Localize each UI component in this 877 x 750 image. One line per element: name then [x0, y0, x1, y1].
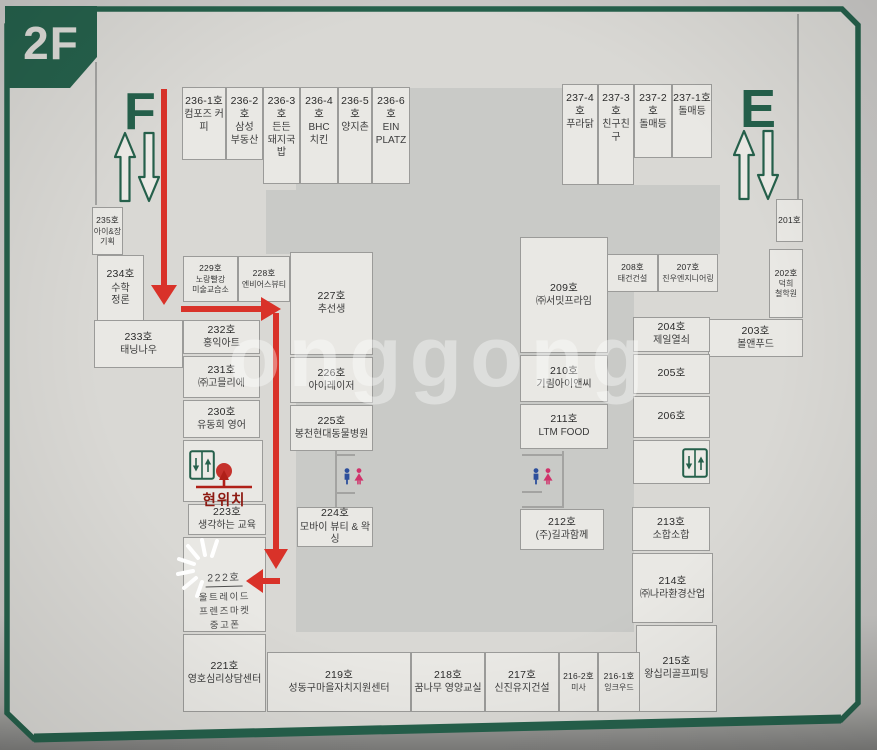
unit-237-1: 237-1호 돌매등 [672, 84, 712, 158]
current-location-dot [216, 463, 232, 479]
unit-number: 222호 [205, 570, 243, 588]
unit-237-2: 237-2호 돌매등 [634, 84, 672, 158]
unit-204: 204호 제일열쇠 [633, 317, 710, 352]
elevator-icon [189, 450, 215, 480]
unit-216-1: 216-1호 잉크우드 [598, 652, 640, 712]
unit-name: 영호심리상담센터 [188, 674, 262, 687]
unit-number: 237-3호 [599, 92, 633, 118]
unit-name: 든든 돼지국밥 [264, 122, 299, 160]
wall-line-right [797, 14, 799, 204]
unit-name: 성동구마을자치지원센터 [288, 683, 389, 696]
unit-218: 218호 꿈나무 영양교실 [411, 652, 485, 712]
unit-name: 돌매등 [678, 106, 706, 119]
unit-222-handwritten: 222호 울트레이드 프렌즈마켓 중고폰 [183, 567, 266, 633]
unit-229: 229호 노랑빨강 미술교습소 [183, 256, 238, 302]
toilet-wall [335, 492, 355, 494]
unit-name: 봉천현대동물병원 [295, 429, 369, 442]
unit-236-5: 236-5호 양지촌 [338, 87, 372, 184]
unit-number: 229호 [199, 263, 222, 274]
unit-226: 226호 아이레이저 [290, 357, 373, 403]
toilet-wall [562, 451, 564, 508]
unit-number: 205호 [658, 367, 686, 380]
unit-name: (주)길과함께 [536, 530, 589, 543]
courtyard-right-gap [634, 185, 720, 254]
unit-number: 212호 [548, 516, 576, 529]
unit-name: 아이레이저 [309, 381, 355, 394]
unit-number: 236-2호 [227, 95, 262, 121]
unit-number: 209호 [550, 282, 578, 295]
unit-224: 224호 모바이 뷰티 & 왁싱 [297, 507, 373, 547]
unit-227: 227호 추선생 [290, 252, 373, 355]
unit-number: 218호 [434, 669, 462, 682]
unit-name: 엔비어스뷰티 [242, 280, 286, 290]
unit-202: 202호 덕희 철학원 [769, 249, 803, 318]
unit-number: 237-2호 [635, 92, 671, 118]
unit-name: 신진유지건설 [494, 683, 549, 696]
unit-225: 225호 봉천현대동물병원 [290, 405, 373, 451]
unit-name: 모바이 뷰티 & 왁싱 [298, 522, 372, 547]
unit-233: 233호 태닝나우 [94, 320, 183, 368]
unit-235: 235호 아이&장 기획 [92, 207, 123, 255]
unit-211: 211호 LTM FOOD [520, 404, 608, 449]
unit-name: 태닝나우 [120, 345, 157, 358]
unit-213: 213호 소합소합 [632, 507, 710, 551]
unit-236-2: 236-2호 삼성 부동산 [226, 87, 263, 160]
unit-203: 203호 볼앤푸드 [708, 319, 803, 357]
unit-name: LTM FOOD [539, 427, 590, 440]
courtyard-left-gap [266, 190, 296, 254]
unit-name: 추선생 [318, 304, 346, 317]
unit-name: 진우엔지니어링 [662, 274, 714, 284]
unit-name: 제일열쇠 [653, 335, 690, 348]
unit-number: 204호 [658, 321, 686, 334]
unit-number: 231호 [208, 364, 236, 377]
unit-number: 201호 [778, 215, 801, 226]
floor-map-photo: { "floor_label": "2F", "stairs": { "f_la… [0, 0, 877, 750]
unit-name: EIN PLATZ [376, 122, 406, 147]
unit-number: 236-1호 [185, 95, 223, 108]
unit-number: 237-1호 [673, 92, 711, 105]
toilet-wall [522, 506, 564, 508]
unit-237-4: 237-4호 푸라닭 [562, 84, 598, 185]
unit-name: 돌매등 [639, 119, 667, 132]
unit-name: 생각하는 교육 [198, 520, 256, 533]
unit-207: 207호 진우엔지니어링 [658, 254, 718, 292]
stairs-f-arrows-icon [114, 131, 160, 203]
unit-name: ㈜서밋프라임 [536, 296, 592, 309]
unit-name: 양지촌 [341, 122, 369, 135]
unit-214: 214호 ㈜나라환경산업 [632, 553, 713, 623]
toilet-icon [341, 468, 367, 485]
wall-line-left [95, 62, 97, 205]
unit-name: 유동희 영어 [197, 420, 246, 433]
floor-badge-label: 2F [14, 16, 88, 70]
unit-name: 기림아이앤씨 [536, 379, 591, 392]
unit-number: 232호 [208, 324, 236, 337]
unit-215: 215호 왕십리골프피팅 [636, 625, 717, 712]
unit-217: 217호 신진유지건설 [485, 652, 559, 712]
stairs-e-arrows-icon [733, 129, 779, 201]
toilet-wall [522, 491, 542, 493]
unit-number: 236-3호 [264, 95, 299, 121]
unit-212: 212호 (주)길과함께 [520, 509, 604, 550]
unit-name: 푸라닭 [566, 119, 594, 132]
unit-205: 205호 [633, 354, 710, 394]
unit-236-1: 236-1호 컴포즈 커피 [182, 87, 226, 160]
unit-name: 볼앤푸드 [737, 339, 774, 352]
unit-name: 친구친구 [599, 119, 633, 144]
unit-name: 노랑빨강 미술교습소 [192, 275, 229, 295]
toilet-wall [522, 454, 564, 456]
unit-number: 217호 [508, 669, 536, 682]
unit-number: 236-5호 [339, 95, 371, 121]
unit-236-6: 236-6호 EIN PLATZ [372, 87, 410, 184]
unit-number: 235호 [96, 215, 119, 226]
unit-number: 210호 [550, 365, 578, 378]
courtyard-top-gap [410, 88, 562, 158]
unit-number: 208호 [621, 262, 644, 273]
unit-237-3: 237-3호 친구친구 [598, 84, 634, 185]
unit-234: 234호 수학 정론 [97, 255, 144, 321]
unit-name: 컴포즈 커피 [183, 109, 225, 134]
unit-name: 울트레이드 프렌즈마켓 중고폰 [184, 590, 266, 633]
unit-number: 237-4호 [563, 92, 597, 118]
unit-number: 213호 [657, 516, 685, 529]
unit-236-4: 236-4호 BHC 치킨 [300, 87, 338, 184]
unit-number: 226호 [318, 367, 346, 380]
unit-231: 231호 ㈜고믈리에 [183, 356, 260, 398]
unit-228: 228호 엔비어스뷰티 [238, 256, 290, 302]
unit-name: BHC 치킨 [308, 122, 329, 147]
unit-number: 215호 [663, 655, 691, 668]
toilet-icon [530, 468, 556, 485]
unit-209: 209호 ㈜서밋프라임 [520, 237, 608, 353]
unit-name: 꿈나무 영양교실 [414, 683, 481, 696]
unit-number: 225호 [318, 415, 346, 428]
toilet-wall [335, 454, 355, 456]
unit-number: 230호 [208, 406, 236, 419]
unit-216-2: 216-2호 미사 [559, 652, 598, 712]
unit-number: 216-2호 [563, 671, 594, 682]
unit-number: 234호 [107, 268, 135, 281]
unit-221: 221호 영호심리상담센터 [183, 634, 266, 712]
unit-name: 잉크우드 [604, 683, 633, 693]
unit-number: 219호 [325, 669, 353, 682]
unit-number: 228호 [253, 268, 276, 279]
unit-number: 236-6호 [373, 95, 409, 121]
unit-name: 왕십리골프피팅 [644, 669, 708, 682]
unit-number: 202호 [775, 268, 798, 279]
unit-219: 219호 성동구마을자치지원센터 [267, 652, 411, 712]
unit-number: 207호 [677, 262, 700, 273]
unit-208: 208호 태건건설 [607, 254, 658, 292]
unit-name: ㈜고믈리에 [198, 378, 245, 391]
unit-number: 221호 [211, 660, 239, 673]
unit-210: 210호 기림아이앤씨 [520, 355, 608, 402]
unit-number: 211호 [550, 413, 577, 426]
toilet-wall [335, 451, 337, 509]
unit-name: 미사 [571, 683, 586, 693]
unit-number: 233호 [125, 331, 153, 344]
unit-number: 206호 [658, 410, 686, 423]
unit-number: 203호 [742, 325, 770, 338]
unit-name: ㈜나라환경산업 [640, 589, 705, 602]
unit-name: 삼성 부동산 [231, 122, 259, 147]
unit-name: 소합소합 [653, 530, 690, 543]
unit-number: 236-4호 [301, 95, 337, 121]
unit-201: 201호 [776, 199, 803, 242]
current-location-label: 현위치 [192, 489, 256, 510]
unit-name: 덕희 철학원 [775, 279, 797, 299]
unit-230: 230호 유동희 영어 [183, 400, 260, 438]
unit-number: 216-1호 [604, 671, 635, 682]
unit-name: 홍익아트 [203, 338, 240, 351]
elevator-icon [682, 448, 708, 478]
unit-name: 아이&장 기획 [94, 227, 121, 247]
unit-number: 224호 [321, 507, 349, 520]
unit-232: 232호 홍익아트 [183, 320, 260, 354]
unit-number: 227호 [318, 290, 346, 303]
unit-206: 206호 [633, 396, 710, 438]
unit-name: 태건건설 [618, 274, 647, 284]
unit-236-3: 236-3호 든든 돼지국밥 [263, 87, 300, 184]
unit-name: 수학 정론 [111, 283, 129, 308]
unit-number: 214호 [659, 575, 687, 588]
